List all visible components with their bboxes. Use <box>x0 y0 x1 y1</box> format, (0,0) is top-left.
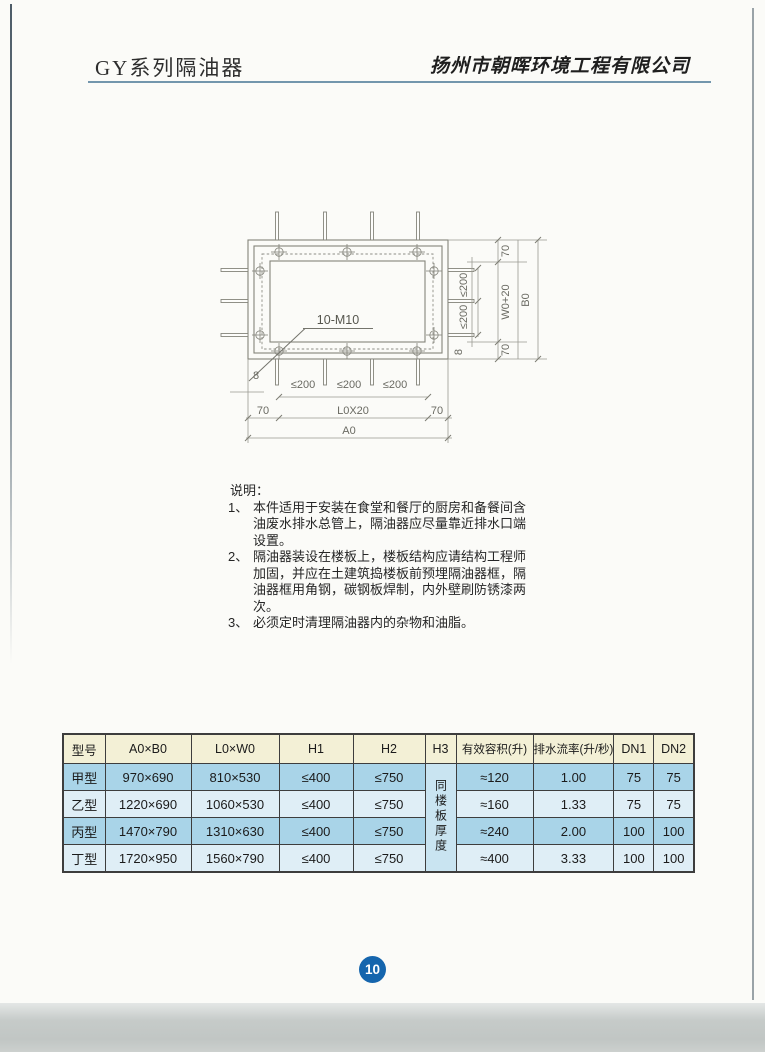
dim-70: 70 <box>500 245 512 257</box>
cell-flow: 1.00 <box>533 764 614 791</box>
cell-dn1: 75 <box>614 791 654 818</box>
note-line: 必须定时清理隔油器内的杂物和油脂。 <box>253 615 540 632</box>
cell-h2: ≤750 <box>353 791 425 818</box>
header-divider <box>88 81 711 83</box>
spec-table: 型号 A0×B0 L0×W0 H1 H2 H3 有效容积(升) 排水流率(升/秒… <box>62 733 695 873</box>
cell-dn2: 75 <box>654 764 694 791</box>
note-marker: 2、 <box>228 549 253 615</box>
page-left-edge <box>10 4 12 664</box>
cell-h2: ≤750 <box>353 845 425 873</box>
note-text: 本件适用于安装在食堂和餐厅的厨房和备餐间含 油废水排水总管上，隔油器应尽量靠近排… <box>253 500 540 550</box>
note-line: 隔油器装设在楼板上，楼板结构应请结构工程师 <box>253 549 540 566</box>
col-header: H1 <box>279 734 353 764</box>
table-header-row: 型号 A0×B0 L0×W0 H1 H2 H3 有效容积(升) 排水流率(升/秒… <box>63 734 694 764</box>
cell-flow: 1.33 <box>533 791 614 818</box>
cell-h1: ≤400 <box>279 845 353 873</box>
note-marker: 1、 <box>228 500 253 550</box>
note-line: 本件适用于安装在食堂和餐厅的厨房和备餐间含 <box>253 500 540 517</box>
cell-dn1: 75 <box>614 764 654 791</box>
notes-heading: 说明： <box>230 483 540 500</box>
note-line: 油废水排水总管上，隔油器应尽量靠近排水口端 <box>253 516 540 533</box>
bolt-line-dashed <box>262 254 433 349</box>
note-marker: 3、 <box>228 615 253 632</box>
bolt-spec-label: 10-M10 <box>317 313 359 327</box>
cell-l0w0: 810×530 <box>191 764 279 791</box>
dim-70: 70 <box>500 344 512 356</box>
cell-h2: ≤750 <box>353 764 425 791</box>
note-item-3: 3、 必须定时清理隔油器内的杂物和油脂。 <box>228 615 540 632</box>
dim-w0plus20: W0+20 <box>500 284 512 319</box>
col-header: 排水流率(升/秒) <box>533 734 614 764</box>
notes-section: 说明： 1、 本件适用于安装在食堂和餐厅的厨房和备餐间含 油废水排水总管上，隔油… <box>228 483 540 632</box>
cell-model: 丁型 <box>63 845 105 873</box>
cell-l0w0: 1060×530 <box>191 791 279 818</box>
cell-flow: 2.00 <box>533 818 614 845</box>
dim-l0x20: L0X20 <box>337 405 369 417</box>
cell-dn2: 100 <box>654 818 694 845</box>
col-header: A0×B0 <box>105 734 191 764</box>
cell-h3-merged: 同楼板厚度 <box>425 764 456 873</box>
cell-h1: ≤400 <box>279 818 353 845</box>
note-text: 隔油器装设在楼板上，楼板结构应请结构工程师 加固，并应在土建筑捣楼板前预埋隔油器… <box>253 549 540 615</box>
company-name: 扬州市朝晖环境工程有限公司 <box>410 51 690 78</box>
page-title: GY系列隔油器 <box>95 52 244 82</box>
cell-model: 乙型 <box>63 791 105 818</box>
col-header: H2 <box>353 734 425 764</box>
table-row: 甲型 970×690 810×530 ≤400 ≤750 同楼板厚度 ≈120 … <box>63 764 694 791</box>
note-item-1: 1、 本件适用于安装在食堂和餐厅的厨房和备餐间含 油废水排水总管上，隔油器应尽量… <box>228 500 540 550</box>
note-item-2: 2、 隔油器装设在楼板上，楼板结构应请结构工程师 加固，并应在土建筑捣楼板前预埋… <box>228 549 540 615</box>
cell-a0b0: 1470×790 <box>105 818 191 845</box>
cell-dn2: 75 <box>654 791 694 818</box>
note-line: 加固，并应在土建筑捣楼板前预埋隔油器框，隔 <box>253 566 540 583</box>
cell-dn1: 100 <box>614 845 654 873</box>
col-header: H3 <box>425 734 456 764</box>
dim-le200: ≤200 <box>383 379 407 391</box>
dim-le200: ≤200 <box>458 305 470 329</box>
note-line: 设置。 <box>253 533 540 550</box>
dim-le200: ≤200 <box>291 379 315 391</box>
cell-h1: ≤400 <box>279 791 353 818</box>
dim-8: 8 <box>253 370 259 382</box>
cell-dn1: 100 <box>614 818 654 845</box>
note-line: 次。 <box>253 599 540 616</box>
cell-volume: ≈160 <box>456 791 533 818</box>
col-header: DN2 <box>654 734 694 764</box>
cell-model: 甲型 <box>63 764 105 791</box>
col-header: 有效容积(升) <box>456 734 533 764</box>
cell-l0w0: 1310×630 <box>191 818 279 845</box>
note-line: 油器框用角钢，碳钢板焊制，内外壁刷防锈漆两 <box>253 582 540 599</box>
oil-separator-frame-drawing: 10-M10 ≤200 ≤200 ≤200 8 70 L0X20 70 A0 ≤… <box>215 195 565 465</box>
cell-model: 丙型 <box>63 818 105 845</box>
dim-8: 8 <box>453 349 465 355</box>
cell-h2: ≤750 <box>353 818 425 845</box>
cell-flow: 3.33 <box>533 845 614 873</box>
frame-outline <box>248 240 448 359</box>
page-number-badge: 10 <box>359 956 386 983</box>
cell-l0w0: 1560×790 <box>191 845 279 873</box>
dim-a0: A0 <box>342 425 355 437</box>
cell-dn2: 100 <box>654 845 694 873</box>
dim-b0: B0 <box>520 293 532 306</box>
cell-a0b0: 1220×690 <box>105 791 191 818</box>
cell-volume: ≈240 <box>456 818 533 845</box>
bolt-callout: 10-M10 <box>249 313 373 381</box>
cell-h1: ≤400 <box>279 764 353 791</box>
table-row: 丁型 1720×950 1560×790 ≤400 ≤750 ≈400 3.33… <box>63 845 694 873</box>
cell-a0b0: 1720×950 <box>105 845 191 873</box>
col-header: DN1 <box>614 734 654 764</box>
dim-le200: ≤200 <box>458 273 470 297</box>
dimension-ticks <box>245 237 541 441</box>
col-header: L0×W0 <box>191 734 279 764</box>
dim-le200: ≤200 <box>337 379 361 391</box>
cell-a0b0: 970×690 <box>105 764 191 791</box>
note-text: 必须定时清理隔油器内的杂物和油脂。 <box>253 615 540 632</box>
scan-bottom-shadow <box>0 1003 765 1052</box>
table-row: 乙型 1220×690 1060×530 ≤400 ≤750 ≈160 1.33… <box>63 791 694 818</box>
cell-volume: ≈120 <box>456 764 533 791</box>
col-header: 型号 <box>63 734 105 764</box>
h3-vertical-text: 同楼板厚度 <box>435 779 447 854</box>
table-row: 丙型 1470×790 1310×630 ≤400 ≤750 ≈240 2.00… <box>63 818 694 845</box>
dim-70: 70 <box>431 405 443 417</box>
cell-volume: ≈400 <box>456 845 533 873</box>
dim-70: 70 <box>257 405 269 417</box>
page-right-edge <box>752 8 754 1000</box>
